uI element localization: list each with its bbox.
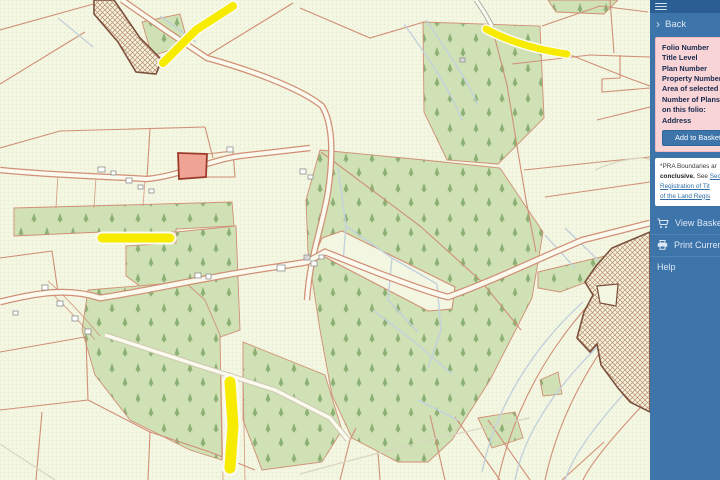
view-basket-label: View Basket <box>675 218 720 228</box>
menu-bar <box>650 0 720 13</box>
printer-icon <box>657 240 668 250</box>
area-label: Area of selected pla <box>662 84 720 94</box>
disclaimer-line-2: conclusive. See Sec <box>660 172 720 182</box>
tools-sidebar: › Back Folio Number Title Level Plan Num… <box>650 0 720 480</box>
hamburger-menu-icon[interactable] <box>655 1 667 12</box>
help-label: Help <box>657 262 676 272</box>
print-current-view-label: Print Current V <box>674 240 720 250</box>
land-registry-link[interactable]: of the Land Regis <box>660 192 720 202</box>
add-to-basket-button[interactable]: Add to Basket <box>662 130 720 146</box>
folio-number-label: Folio Number <box>662 43 720 53</box>
back-label: Back <box>665 19 686 30</box>
landdirect-map-viewer: › Back Folio Number Title Level Plan Num… <box>0 0 720 480</box>
pra-disclaimer: *PRA Boundaries ar conclusive. See Sec R… <box>655 158 720 206</box>
cart-icon <box>657 218 669 229</box>
property-number-label: Property Number <box>662 74 720 84</box>
folio-info-panel: Folio Number Title Level Plan Number Pro… <box>655 37 720 152</box>
address-label: Address <box>662 116 720 126</box>
chevron-right-icon: › <box>656 19 660 29</box>
disclaimer-line-1: *PRA Boundaries ar <box>660 162 720 172</box>
view-basket-button[interactable]: View Basket <box>650 213 720 234</box>
highlighted-parcel[interactable] <box>178 153 207 179</box>
map-canvas[interactable] <box>0 0 650 480</box>
print-current-view-button[interactable]: Print Current V <box>650 234 720 256</box>
help-button[interactable]: Help <box>650 256 720 278</box>
section-link[interactable]: Sec <box>710 173 720 180</box>
registration-of-title-link[interactable]: Registration of Tit <box>660 182 720 192</box>
title-level-label: Title Level <box>662 53 720 63</box>
back-button[interactable]: › Back <box>650 13 720 35</box>
plans-count-label: Number of Plans on this folio: <box>662 95 720 116</box>
plan-number-label: Plan Number <box>662 64 720 74</box>
